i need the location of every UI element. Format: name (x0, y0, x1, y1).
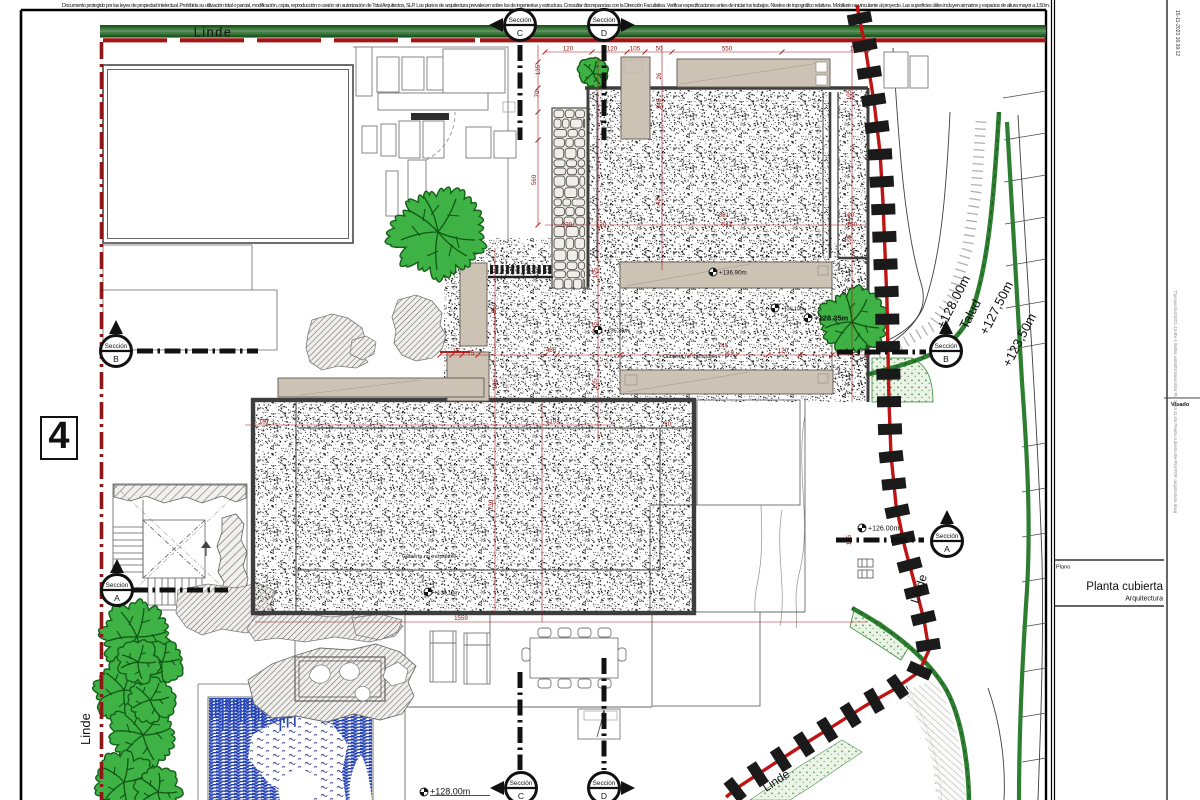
svg-text:120: 120 (778, 348, 789, 355)
svg-text:B: B (943, 354, 949, 364)
svg-text:Sección: Sección (106, 582, 129, 589)
svg-text:196: 196 (492, 378, 499, 389)
svg-text:541: 541 (722, 222, 733, 229)
svg-text:B: B (113, 354, 119, 364)
svg-text:157: 157 (259, 419, 270, 426)
svg-text:4: 4 (48, 415, 69, 457)
svg-text:Planta cubierta: Planta cubierta (1086, 581, 1163, 593)
svg-text:A: A (944, 544, 950, 554)
svg-text:730: 730 (488, 499, 495, 510)
svg-text:Sección: Sección (935, 343, 958, 350)
svg-text:D: D (601, 28, 607, 38)
svg-text:70: 70 (534, 90, 541, 97)
svg-text:150: 150 (847, 222, 858, 229)
svg-text:15-11-2023 16:39:12: 15-11-2023 16:39:12 (1174, 10, 1180, 56)
svg-text:Cubierta no transitable: Cubierta no transitable (663, 354, 717, 360)
svg-text:+136.90m: +136.90m (719, 270, 747, 277)
svg-text:420: 420 (655, 194, 662, 205)
svg-text:Arquitectura: Arquitectura (1125, 596, 1163, 603)
svg-text:550: 550 (722, 46, 733, 53)
svg-text:105: 105 (846, 89, 853, 100)
svg-text:466: 466 (546, 347, 557, 354)
svg-text:105: 105 (846, 234, 853, 245)
svg-text:Plano: Plano (1056, 565, 1070, 571)
svg-text:245: 245 (656, 98, 663, 109)
svg-text:26: 26 (656, 72, 663, 79)
svg-text:Linde: Linde (78, 713, 93, 745)
svg-text:105: 105 (592, 378, 599, 389)
svg-text:Sección: Sección (593, 780, 616, 787)
svg-text:120: 120 (596, 222, 607, 229)
svg-text:Documento protegido por las le: Documento protegido por las leyes de pro… (62, 3, 1050, 9)
svg-text:50: 50 (656, 46, 663, 53)
svg-text:+128.35m: +128.35m (814, 314, 849, 323)
svg-text:C: C (518, 791, 524, 800)
svg-text:105: 105 (630, 46, 641, 53)
svg-text:+128.00m: +128.00m (430, 787, 470, 797)
svg-text:1559: 1559 (454, 615, 468, 622)
svg-text:A: A (114, 593, 120, 603)
svg-text:560: 560 (531, 174, 538, 185)
svg-text:C: C (517, 28, 523, 38)
svg-text:119: 119 (724, 350, 734, 357)
svg-text:+136.10m: +136.10m (434, 591, 459, 597)
svg-text:210: 210 (661, 421, 672, 428)
svg-text:745: 745 (718, 343, 729, 350)
svg-text:160: 160 (844, 212, 855, 219)
svg-text:Linde: Linde (194, 25, 233, 40)
svg-text:+136.10m: +136.10m (781, 307, 804, 313)
svg-text:850: 850 (491, 302, 498, 313)
svg-text:T:\proyectos\1021-13-BV-1 Bahi: T:\proyectos\1021-13-BV-1 Bahia vista\03… (1173, 290, 1178, 514)
svg-text:+126.00m: +126.00m (868, 526, 899, 533)
svg-text:Sección: Sección (593, 17, 616, 24)
svg-text:120: 120 (563, 46, 574, 53)
svg-text:Cubierta no transitable: Cubierta no transitable (402, 554, 456, 560)
svg-text:Sección: Sección (105, 343, 128, 350)
svg-text:120: 120 (607, 46, 618, 53)
svg-text:105: 105 (592, 267, 599, 278)
svg-text:881: 881 (719, 212, 730, 219)
svg-text:Sección: Sección (936, 533, 959, 540)
svg-text:Sección: Sección (510, 780, 533, 787)
svg-text:+136.30m: +136.30m (604, 329, 629, 335)
svg-text:135: 135 (535, 64, 542, 75)
svg-text:D: D (601, 791, 607, 800)
svg-text:Sección: Sección (509, 17, 532, 24)
svg-text:120: 120 (562, 222, 573, 229)
svg-text:1193: 1193 (546, 419, 560, 426)
